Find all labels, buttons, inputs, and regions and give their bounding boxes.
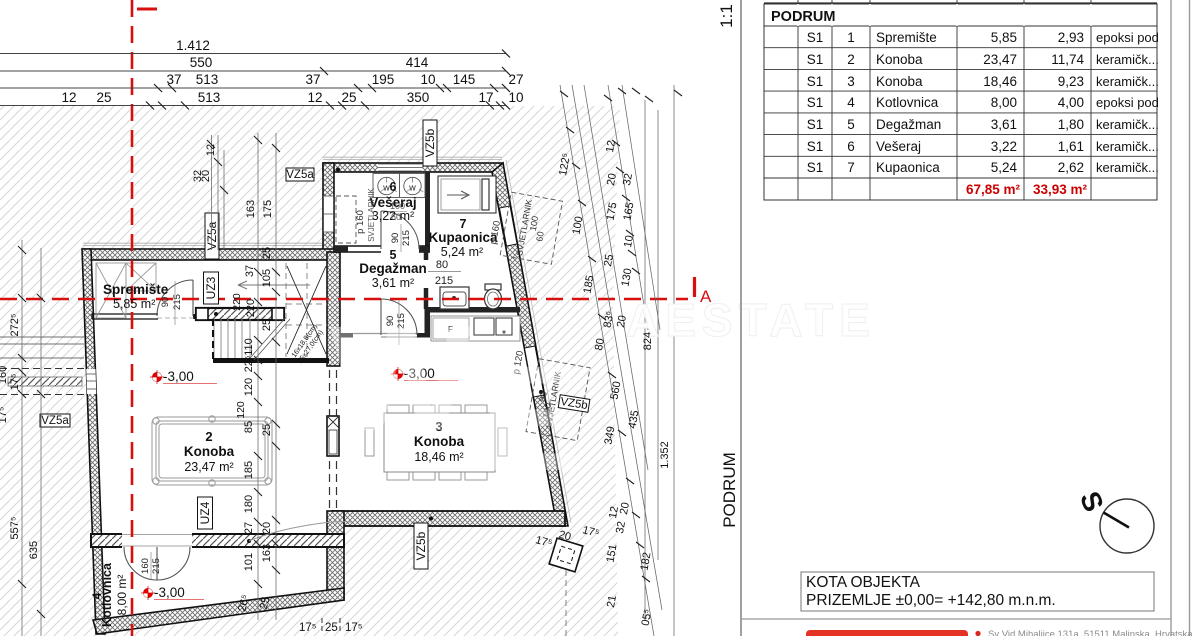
svg-text:18,46: 18,46 — [983, 74, 1017, 89]
svg-text:27: 27 — [243, 522, 255, 534]
svg-text:1: 1 — [847, 30, 855, 45]
svg-text:E: E — [480, 334, 580, 502]
svg-text:12: 12 — [307, 90, 322, 105]
svg-text:5,24: 5,24 — [991, 160, 1018, 175]
svg-text:PRIZEMLJE ±0,00= +142,80 m.n.m: PRIZEMLJE ±0,00= +142,80 m.n.m. — [806, 592, 1056, 609]
svg-text:25: 25 — [261, 319, 273, 331]
svg-text:10: 10 — [420, 72, 435, 87]
svg-text:S1: S1 — [807, 95, 824, 110]
svg-text:195: 195 — [372, 72, 395, 87]
svg-text:3: 3 — [847, 74, 855, 89]
svg-text:90: 90 — [160, 297, 171, 308]
svg-text:414: 414 — [406, 55, 429, 70]
svg-text:220: 220 — [245, 299, 257, 317]
svg-text:3,61: 3,61 — [991, 117, 1017, 132]
svg-text:1,61: 1,61 — [1058, 139, 1084, 154]
svg-text:7: 7 — [847, 160, 855, 175]
svg-text:keramičk...: keramičk... — [1096, 160, 1159, 175]
svg-text:220: 220 — [231, 293, 243, 311]
svg-text:2,93: 2,93 — [1058, 30, 1084, 45]
svg-text:32: 32 — [614, 520, 628, 534]
svg-text:5,24 m²: 5,24 m² — [441, 245, 483, 259]
svg-text:8,00 m²: 8,00 m² — [115, 575, 129, 616]
svg-text:60: 60 — [391, 212, 401, 222]
svg-text:Konoba: Konoba — [184, 444, 235, 459]
svg-text:keramičk...: keramičk... — [1096, 139, 1159, 154]
svg-text:67,85 m²: 67,85 m² — [966, 182, 1021, 197]
svg-text:110: 110 — [243, 338, 255, 356]
svg-text:60: 60 — [534, 231, 546, 243]
svg-text:105: 105 — [261, 269, 273, 287]
svg-text:SVJETLARNIK: SVJETLARNIK — [367, 187, 376, 241]
svg-text:VZ5a: VZ5a — [205, 221, 219, 250]
svg-text:S1: S1 — [807, 74, 824, 89]
svg-text:80: 80 — [593, 337, 607, 351]
svg-text:17: 17 — [478, 90, 493, 105]
svg-text:-3,00: -3,00 — [163, 369, 194, 384]
svg-text:S1: S1 — [807, 30, 824, 45]
svg-text:180: 180 — [243, 495, 255, 513]
svg-text:Konoba: Konoba — [876, 52, 923, 67]
svg-text:37: 37 — [166, 72, 181, 87]
svg-text:11,74: 11,74 — [1051, 52, 1084, 67]
svg-text:25: 25 — [261, 247, 273, 259]
svg-text:215: 215 — [435, 275, 453, 287]
svg-text:22⁵: 22⁵ — [243, 356, 255, 373]
svg-text:VZ5b: VZ5b — [414, 531, 428, 560]
svg-text:Spremište: Spremište — [103, 282, 169, 297]
svg-text:163: 163 — [261, 544, 273, 562]
svg-text:21: 21 — [605, 594, 619, 608]
svg-text:160: 160 — [140, 558, 151, 574]
svg-text:1.352: 1.352 — [659, 441, 671, 469]
svg-text:2: 2 — [205, 429, 212, 444]
svg-text:2: 2 — [847, 52, 855, 67]
svg-text:185: 185 — [243, 461, 255, 479]
svg-text:23,47 m²: 23,47 m² — [184, 460, 233, 474]
svg-text:12: 12 — [205, 144, 217, 156]
svg-text:1,80: 1,80 — [1058, 117, 1084, 132]
svg-text:-3,00: -3,00 — [154, 585, 185, 600]
svg-text:keramičk...: keramičk... — [1096, 74, 1159, 89]
svg-text:120: 120 — [243, 378, 255, 396]
svg-text:4,00: 4,00 — [1058, 95, 1084, 110]
svg-text:5: 5 — [847, 117, 855, 132]
svg-text:10: 10 — [508, 90, 523, 105]
svg-text:25: 25 — [602, 253, 616, 267]
svg-text:550: 550 — [190, 55, 213, 70]
svg-text:keramičk...: keramičk... — [1096, 52, 1159, 67]
svg-text:8,00: 8,00 — [991, 95, 1017, 110]
svg-text:25: 25 — [261, 424, 273, 436]
svg-text:UZ3: UZ3 — [204, 276, 218, 299]
svg-text:3,22: 3,22 — [991, 139, 1017, 154]
svg-text:keramičk...: keramičk... — [1096, 117, 1159, 132]
svg-text:6: 6 — [847, 139, 855, 154]
svg-text:215: 215 — [172, 294, 183, 310]
svg-text:5,85 m²: 5,85 m² — [113, 297, 155, 311]
svg-text:17⁵: 17⁵ — [345, 622, 363, 634]
svg-text:5: 5 — [390, 248, 397, 262]
svg-text:3,61 m²: 3,61 m² — [372, 276, 414, 290]
svg-text:Sv Vid Mihaljice 131a, 51511 M: Sv Vid Mihaljice 131a, 51511 Malinska, H… — [988, 629, 1193, 636]
svg-text:163: 163 — [245, 200, 257, 218]
svg-text:12: 12 — [61, 90, 76, 105]
svg-text:37: 37 — [244, 265, 256, 277]
svg-text:635: 635 — [28, 541, 40, 559]
svg-text:101: 101 — [243, 553, 255, 571]
svg-text:7: 7 — [460, 217, 467, 231]
svg-text:160: 160 — [0, 366, 9, 384]
svg-text:17⁵: 17⁵ — [299, 622, 317, 634]
svg-text:90: 90 — [390, 233, 401, 244]
svg-text:513: 513 — [198, 90, 221, 105]
svg-text:VZ5a: VZ5a — [286, 169, 314, 181]
svg-text:2,62: 2,62 — [1058, 160, 1084, 175]
svg-text:145: 145 — [453, 72, 476, 87]
svg-text:Kupaonica: Kupaonica — [876, 160, 940, 175]
svg-text:10: 10 — [622, 234, 636, 248]
svg-text:175: 175 — [262, 200, 274, 218]
svg-text:12: 12 — [604, 139, 618, 153]
svg-text:PODRUM: PODRUM — [771, 9, 835, 25]
svg-text:25: 25 — [325, 622, 338, 634]
svg-text:AESTATE: AESTATE — [626, 294, 876, 346]
svg-text:100: 100 — [390, 201, 405, 211]
svg-text:S1: S1 — [807, 160, 824, 175]
svg-text:20: 20 — [605, 172, 619, 186]
svg-text:S1: S1 — [807, 139, 824, 154]
svg-text:Kotlovnica: Kotlovnica — [100, 562, 114, 627]
svg-text:17⁵: 17⁵ — [9, 374, 21, 391]
svg-text:25: 25 — [96, 90, 111, 105]
svg-text:VZ5a: VZ5a — [41, 415, 69, 427]
svg-text:p 160: p 160 — [355, 210, 366, 234]
svg-text:23,47: 23,47 — [983, 52, 1017, 67]
svg-text:Vešeraj: Vešeraj — [876, 139, 921, 154]
svg-text:w: w — [408, 183, 416, 193]
svg-text:KOTA OBJEKTA: KOTA OBJEKTA — [806, 574, 921, 591]
svg-text:S1: S1 — [807, 117, 824, 132]
svg-text:20: 20 — [261, 522, 273, 534]
svg-text:1.412: 1.412 — [176, 38, 210, 53]
svg-text:Degažman: Degažman — [359, 261, 427, 276]
svg-text:UZ4: UZ4 — [198, 501, 212, 524]
svg-text:Degažman: Degažman — [876, 117, 941, 132]
svg-text:PODRUM: PODRUM — [720, 452, 739, 528]
svg-text:350: 350 — [407, 90, 430, 105]
svg-text:32: 32 — [621, 172, 635, 186]
svg-text:272⁵: 272⁵ — [9, 314, 21, 337]
svg-text:20: 20 — [200, 170, 212, 182]
svg-text:S1: S1 — [807, 52, 824, 67]
svg-text:557⁵: 557⁵ — [9, 517, 21, 540]
svg-text:6: 6 — [390, 180, 397, 194]
svg-text:27: 27 — [508, 72, 523, 87]
svg-text:4: 4 — [847, 95, 855, 110]
svg-text:9,23: 9,23 — [1058, 74, 1084, 89]
svg-text:Spremište: Spremište — [876, 30, 937, 45]
svg-text:VZ5b: VZ5b — [423, 128, 437, 157]
svg-text:215: 215 — [151, 558, 162, 574]
svg-text:33,93 m²: 33,93 m² — [1033, 182, 1088, 197]
svg-text:17⁵: 17⁵ — [0, 407, 9, 424]
svg-text:25: 25 — [341, 90, 356, 105]
svg-text:120: 120 — [235, 401, 247, 419]
svg-text:80: 80 — [436, 259, 448, 271]
svg-text:12: 12 — [607, 505, 621, 519]
svg-text:5,85: 5,85 — [991, 30, 1017, 45]
svg-text:epoksi pod: epoksi pod — [1096, 95, 1159, 110]
svg-text:1:1: 1:1 — [717, 4, 736, 28]
svg-text:85: 85 — [243, 421, 255, 433]
svg-text:37: 37 — [305, 72, 320, 87]
svg-text:513: 513 — [196, 72, 219, 87]
svg-text:W: W — [330, 294, 472, 462]
svg-text:215: 215 — [401, 230, 412, 246]
svg-text:epoksi pod: epoksi pod — [1096, 30, 1159, 45]
svg-text:Kotlovnica: Kotlovnica — [876, 95, 939, 110]
svg-text:Konoba: Konoba — [876, 74, 923, 89]
